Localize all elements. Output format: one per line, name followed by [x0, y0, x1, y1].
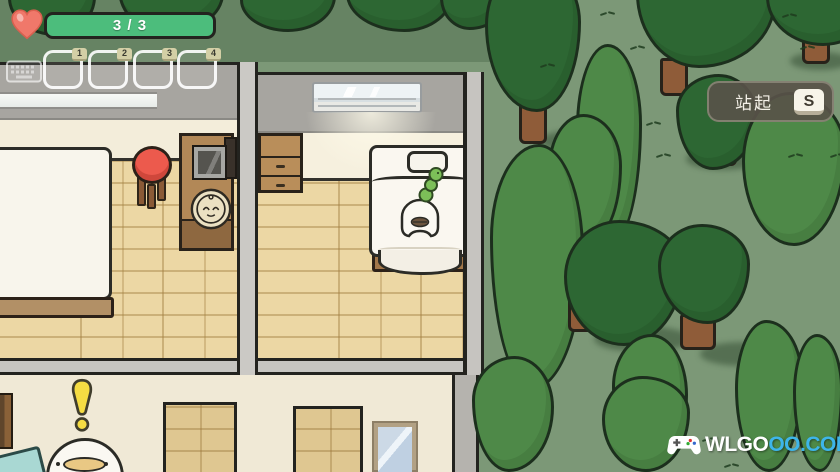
- grass-tuft: [540, 62, 556, 71]
- key-s-cap: S: [794, 89, 824, 115]
- keyboard-icon: [6, 60, 42, 83]
- grass-tuft: [800, 44, 816, 53]
- hotbar-key-badge: 2: [117, 48, 132, 61]
- watermark: WLGOOO.COM: [666, 432, 840, 458]
- grass-tuft: [724, 462, 740, 471]
- grass-tuft: [656, 152, 672, 161]
- grass-tuft: [646, 120, 662, 129]
- grass-tuft: [782, 12, 798, 21]
- watermark-text: WLGOOO.COM: [705, 433, 840, 457]
- grass-tuft: [830, 152, 840, 161]
- gamepad-icon: [666, 432, 702, 458]
- heart-icon: [10, 8, 44, 41]
- hotbar-key-badge: 3: [162, 48, 177, 61]
- hotbar-slot-4[interactable]: 4: [177, 50, 217, 89]
- hotbar-slot-3[interactable]: 3: [133, 50, 173, 89]
- hotbar-slot-1[interactable]: 1: [43, 50, 83, 89]
- grass-tuft: [630, 44, 646, 53]
- stand-up-button[interactable]: 站起 S: [707, 81, 834, 122]
- stand-up-label: 站起: [735, 89, 773, 114]
- health-bar-text: 3 / 3: [44, 15, 216, 36]
- health-bar: 3 / 3: [44, 12, 216, 39]
- hotbar-slot-2[interactable]: 2: [88, 50, 128, 89]
- grass-tuft: [600, 10, 616, 19]
- grass-tuft: [788, 152, 804, 161]
- game-viewport: 3 / 3 1 2 3 4 站起 S WLGOOO.COM: [0, 0, 840, 472]
- hotbar-key-badge: 1: [72, 48, 87, 61]
- hotbar-key-badge: 4: [206, 48, 221, 61]
